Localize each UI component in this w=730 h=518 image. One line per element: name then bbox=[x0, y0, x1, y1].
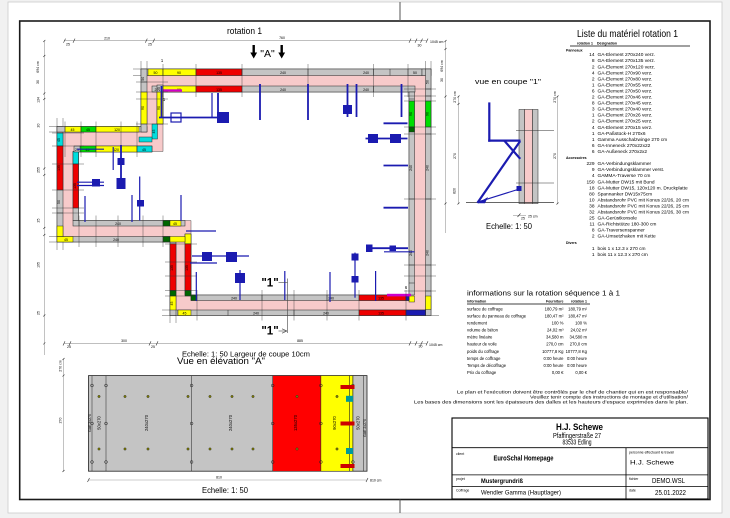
svg-text:GA-Verbindungsklammer verst.: GA-Verbindungsklammer verst. bbox=[598, 167, 665, 173]
svg-text:6: 6 bbox=[592, 149, 595, 155]
svg-text:Echelle: 1: 50: Echelle: 1: 50 bbox=[486, 222, 533, 231]
svg-text:90: 90 bbox=[157, 106, 161, 110]
svg-text:GA-Element 270x15 verz.: GA-Element 270x15 verz. bbox=[598, 125, 653, 131]
svg-text:24,02 m³: 24,02 m³ bbox=[547, 328, 564, 333]
svg-text:vue en coupe "1": vue en coupe "1" bbox=[475, 77, 541, 86]
svg-text:694 cm: 694 cm bbox=[440, 60, 444, 72]
svg-text:100 %: 100 % bbox=[575, 321, 587, 326]
svg-text:4: 4 bbox=[592, 125, 595, 131]
svg-text:45: 45 bbox=[57, 138, 61, 142]
svg-text:GA-Element 270x240 verz.: GA-Element 270x240 verz. bbox=[598, 52, 656, 58]
svg-text:projet: projet bbox=[456, 477, 465, 481]
svg-text:240: 240 bbox=[253, 311, 259, 315]
svg-text:Divers: Divers bbox=[566, 241, 577, 245]
svg-text:195: 195 bbox=[37, 262, 41, 268]
svg-text:GA-Traversenspanner: GA-Traversenspanner bbox=[598, 228, 646, 234]
svg-text:135: 135 bbox=[185, 265, 189, 271]
svg-text:GA-Element 270x135 verz.: GA-Element 270x135 verz. bbox=[598, 58, 656, 64]
svg-text:270: 270 bbox=[553, 153, 557, 159]
svg-text:25: 25 bbox=[157, 87, 161, 91]
svg-text:50: 50 bbox=[426, 80, 430, 84]
svg-text:personne effectuant le travail: personne effectuant le travail bbox=[629, 451, 674, 455]
svg-text:2: 2 bbox=[592, 95, 595, 101]
svg-text:H.J. Schewe: H.J. Schewe bbox=[556, 422, 603, 433]
svg-text:270: 270 bbox=[59, 418, 63, 424]
svg-text:810: 810 bbox=[216, 476, 222, 480]
svg-text:0:00 heure: 0:00 heure bbox=[543, 363, 564, 368]
svg-text:135: 135 bbox=[73, 183, 77, 189]
svg-text:25: 25 bbox=[148, 42, 152, 46]
svg-text:Wendler Gamma (Hauptlager): Wendler Gamma (Hauptlager) bbox=[481, 491, 561, 497]
svg-text:20: 20 bbox=[37, 124, 41, 128]
svg-text:18: 18 bbox=[589, 185, 595, 191]
svg-text:45: 45 bbox=[152, 130, 156, 134]
svg-text:45: 45 bbox=[86, 128, 90, 132]
svg-text:0,00 €: 0,00 € bbox=[575, 370, 587, 375]
svg-text:30: 30 bbox=[418, 44, 422, 48]
svg-text:135: 135 bbox=[170, 265, 174, 271]
svg-text:surface du panneau de coffrage: surface du panneau de coffrage bbox=[467, 313, 527, 318]
svg-text:2: 2 bbox=[592, 119, 595, 125]
svg-text:240: 240 bbox=[409, 250, 413, 256]
svg-text:rendement: rendement bbox=[467, 321, 488, 326]
svg-text:1: 1 bbox=[592, 113, 595, 119]
svg-text:GA-Element 270x120 verz.: GA-Element 270x120 verz. bbox=[598, 64, 656, 70]
svg-text:45: 45 bbox=[71, 128, 75, 132]
svg-text:120: 120 bbox=[113, 148, 119, 152]
svg-text:DEMO.WSL: DEMO.WSL bbox=[652, 478, 685, 485]
svg-text:240: 240 bbox=[409, 165, 413, 171]
svg-text:bois 1 x 12.3 x 270 cm: bois 1 x 12.3 x 270 cm bbox=[598, 246, 646, 252]
svg-text:date: date bbox=[629, 489, 636, 493]
svg-text:25: 25 bbox=[37, 311, 41, 315]
svg-text:240: 240 bbox=[426, 165, 430, 171]
svg-text:24,02 m³: 24,02 m³ bbox=[570, 328, 587, 333]
svg-text:270,0 cm: 270,0 cm bbox=[570, 342, 588, 347]
svg-text:50: 50 bbox=[57, 200, 61, 204]
svg-text:135: 135 bbox=[378, 296, 384, 300]
svg-text:25: 25 bbox=[151, 345, 155, 349]
svg-text:50: 50 bbox=[154, 71, 158, 75]
svg-text:50x270: 50x270 bbox=[97, 415, 102, 429]
svg-text:Prix du coffrage: Prix du coffrage bbox=[467, 370, 497, 375]
svg-text:300: 300 bbox=[121, 339, 127, 343]
svg-text:GA-Element 270x90 verz.: GA-Element 270x90 verz. bbox=[598, 70, 653, 76]
svg-text:GAE 2x270: GAE 2x270 bbox=[363, 419, 367, 437]
svg-text:90: 90 bbox=[141, 106, 145, 110]
svg-text:GA-Element 270x45 verz.: GA-Element 270x45 verz. bbox=[598, 101, 653, 107]
svg-text:1: 1 bbox=[592, 137, 595, 143]
svg-text:informations sur la rotation: informations sur la rotation séquence 1 … bbox=[467, 291, 620, 298]
svg-text:135: 135 bbox=[378, 311, 384, 315]
svg-text:229: 229 bbox=[586, 161, 594, 167]
svg-text:25: 25 bbox=[37, 219, 41, 223]
svg-text:270: 270 bbox=[453, 153, 457, 159]
svg-text:30: 30 bbox=[440, 78, 444, 82]
svg-text:Abstandsrohr PVC mit Konus 22/: Abstandsrohr PVC mit Konus 22/26, 20 cm bbox=[598, 197, 689, 203]
svg-text:client: client bbox=[456, 452, 464, 456]
svg-text:"1": "1" bbox=[261, 326, 278, 338]
svg-text:Gamma Ausschalzwinge 270 cm: Gamma Ausschalzwinge 270 cm bbox=[598, 137, 668, 143]
svg-text:25: 25 bbox=[521, 217, 525, 221]
svg-text:1: 1 bbox=[592, 252, 595, 258]
svg-text:GA-Element 270x50 verz.: GA-Element 270x50 verz. bbox=[598, 89, 653, 95]
svg-text:GA-Mutter DW15 mit Bund: GA-Mutter DW15 mit Bund bbox=[598, 179, 655, 185]
svg-text:Abstandsrohr PVC mit Konus 22/: Abstandsrohr PVC mit Konus 22/26, 25 cm bbox=[598, 204, 689, 210]
svg-text:45: 45 bbox=[170, 302, 174, 306]
svg-text:240: 240 bbox=[328, 296, 334, 300]
svg-text:240: 240 bbox=[231, 296, 237, 300]
svg-text:1: 1 bbox=[592, 82, 595, 88]
svg-text:45: 45 bbox=[173, 222, 177, 226]
svg-text:Accessoires: Accessoires bbox=[566, 156, 587, 160]
svg-text:135: 135 bbox=[57, 165, 61, 171]
svg-text:4: 4 bbox=[592, 70, 595, 76]
svg-text:"A": "A" bbox=[260, 48, 275, 60]
svg-text:10: 10 bbox=[589, 197, 595, 203]
svg-text:50: 50 bbox=[413, 71, 417, 75]
svg-text:poids du coffrage: poids du coffrage bbox=[467, 349, 500, 354]
svg-text:GAMMA-Traverse 70 cm: GAMMA-Traverse 70 cm bbox=[598, 173, 651, 179]
svg-text:EuroSchal Homepage: EuroSchal Homepage bbox=[494, 456, 554, 463]
svg-text:2: 2 bbox=[592, 76, 595, 82]
svg-text:mètre linéaire: mètre linéaire bbox=[467, 335, 493, 340]
svg-text:fichier: fichier bbox=[629, 477, 639, 481]
svg-text:Vue en élévation "A": Vue en élévation "A" bbox=[177, 356, 265, 367]
svg-text:820: 820 bbox=[453, 188, 457, 194]
svg-text:2: 2 bbox=[592, 234, 595, 240]
svg-text:hauteur de voile: hauteur de voile bbox=[467, 342, 497, 347]
svg-text:45: 45 bbox=[142, 148, 146, 152]
svg-text:240: 240 bbox=[426, 250, 430, 256]
svg-text:180,79 m²: 180,79 m² bbox=[545, 306, 564, 311]
svg-text:9: 9 bbox=[592, 167, 595, 173]
svg-text:0:00 heure: 0:00 heure bbox=[567, 363, 588, 368]
svg-text:Temps de décoffrage: Temps de décoffrage bbox=[467, 363, 507, 368]
svg-text:14: 14 bbox=[589, 52, 595, 58]
svg-text:30: 30 bbox=[419, 344, 423, 348]
svg-text:0:00 heure: 0:00 heure bbox=[567, 356, 588, 361]
svg-text:45: 45 bbox=[86, 148, 90, 152]
svg-text:H.J. Schewe: H.J. Schewe bbox=[630, 461, 675, 467]
svg-text:GA-Element 270x55 verz.: GA-Element 270x55 verz. bbox=[598, 82, 653, 88]
svg-text:rotation 1: rotation 1 bbox=[227, 26, 262, 37]
svg-text:270 cm: 270 cm bbox=[59, 360, 63, 372]
svg-text:GA-Umsetzhaken mit Kette: GA-Umsetzhaken mit Kette bbox=[598, 234, 656, 240]
svg-text:180,47 m²: 180,47 m² bbox=[568, 313, 587, 318]
svg-text:90: 90 bbox=[177, 71, 181, 75]
svg-text:90x270: 90x270 bbox=[332, 415, 337, 429]
svg-text:240: 240 bbox=[323, 311, 329, 315]
svg-text:240: 240 bbox=[363, 88, 369, 92]
svg-text:25: 25 bbox=[75, 148, 79, 152]
svg-text:25: 25 bbox=[589, 216, 595, 222]
svg-text:38: 38 bbox=[589, 204, 595, 210]
svg-text:GA-Inneneck 270x22x22: GA-Inneneck 270x22x22 bbox=[598, 143, 651, 149]
svg-text:Les bases des dimensions sont: Les bases des dimensions sont les épaiss… bbox=[414, 400, 688, 405]
svg-text:34,580 m: 34,580 m bbox=[546, 335, 564, 340]
svg-text:255: 255 bbox=[37, 167, 41, 173]
svg-text:rotation 1: rotation 1 bbox=[577, 42, 593, 46]
svg-text:0:00 heure: 0:00 heure bbox=[543, 356, 564, 361]
svg-text:6: 6 bbox=[592, 89, 595, 95]
svg-text:25.01.2022: 25.01.2022 bbox=[655, 490, 686, 497]
svg-text:810 cm: 810 cm bbox=[370, 479, 382, 483]
svg-text:34,580 m: 34,580 m bbox=[570, 335, 588, 340]
svg-text:8: 8 bbox=[592, 101, 595, 107]
svg-text:885: 885 bbox=[297, 339, 303, 343]
svg-text:Fourniture: Fourniture bbox=[546, 300, 564, 304]
svg-text:bois 11 x 12.3 x 270 cm: bois 11 x 12.3 x 270 cm bbox=[598, 252, 648, 258]
svg-text:45: 45 bbox=[64, 238, 68, 242]
svg-text:134: 134 bbox=[37, 97, 41, 103]
svg-text:GA-Element 270x40 verz.: GA-Element 270x40 verz. bbox=[598, 107, 653, 113]
svg-text:270 cm: 270 cm bbox=[453, 91, 457, 103]
svg-text:GA-Gerüstkonsole: GA-Gerüstkonsole bbox=[598, 216, 638, 222]
svg-text:694 cm: 694 cm bbox=[36, 61, 40, 73]
svg-text:8: 8 bbox=[592, 228, 595, 234]
svg-text:rotation 1: rotation 1 bbox=[571, 300, 587, 304]
svg-text:1045 cm: 1045 cm bbox=[429, 343, 443, 347]
svg-text:Echelle: 1: 50: Echelle: 1: 50 bbox=[202, 486, 249, 495]
svg-text:Spannanker DW15x75cm: Spannanker DW15x75cm bbox=[598, 191, 653, 197]
svg-text:surface de coffrage: surface de coffrage bbox=[467, 306, 503, 311]
svg-text:GA-Außeneck 270x2x2: GA-Außeneck 270x2x2 bbox=[598, 149, 648, 155]
svg-text:4: 4 bbox=[592, 173, 595, 179]
svg-text:135x270: 135x270 bbox=[293, 414, 298, 431]
svg-text:25 cm: 25 cm bbox=[528, 215, 538, 219]
svg-text:270,0 cm: 270,0 cm bbox=[546, 342, 564, 347]
svg-text:3: 3 bbox=[592, 107, 595, 113]
svg-text:83533 Edling: 83533 Edling bbox=[563, 440, 592, 447]
svg-text:760: 760 bbox=[279, 36, 285, 40]
svg-text:GA-Richtstütze 180-300 cm: GA-Richtstütze 180-300 cm bbox=[598, 222, 657, 228]
svg-text:240: 240 bbox=[363, 71, 369, 75]
svg-text:32: 32 bbox=[589, 210, 595, 216]
svg-text:1: 1 bbox=[592, 131, 595, 137]
svg-text:120: 120 bbox=[114, 128, 120, 132]
svg-text:Coffrage: Coffrage bbox=[456, 489, 469, 493]
svg-text:135: 135 bbox=[216, 71, 222, 75]
svg-text:25: 25 bbox=[67, 345, 71, 349]
svg-text:6: 6 bbox=[592, 143, 595, 149]
svg-text:240: 240 bbox=[280, 88, 286, 92]
svg-text:10777,8 Kg: 10777,8 Kg bbox=[566, 349, 588, 354]
svg-text:8: 8 bbox=[592, 58, 595, 64]
svg-text:0,00 €: 0,00 € bbox=[552, 370, 564, 375]
svg-text:180,47 m²: 180,47 m² bbox=[545, 313, 564, 318]
svg-text:GA-Element 270x46 verz.: GA-Element 270x46 verz. bbox=[598, 95, 653, 101]
svg-text:information: information bbox=[467, 300, 486, 304]
svg-text:temps de coffrage: temps de coffrage bbox=[467, 356, 501, 361]
svg-text:240: 240 bbox=[280, 71, 286, 75]
svg-text:50: 50 bbox=[141, 77, 145, 81]
svg-text:210: 210 bbox=[104, 37, 110, 41]
svg-text:2: 2 bbox=[592, 64, 595, 70]
svg-text:Liste du matériel rotation 1: Liste du matériel rotation 1 bbox=[577, 28, 678, 40]
svg-text:Désignation: Désignation bbox=[597, 42, 617, 46]
svg-text:50x270: 50x270 bbox=[356, 415, 361, 429]
svg-text:10777,8 Kg: 10777,8 Kg bbox=[542, 349, 564, 354]
svg-text:GA-Verbindungsklammer: GA-Verbindungsklammer bbox=[598, 161, 652, 167]
svg-text:270 cm: 270 cm bbox=[553, 91, 557, 103]
svg-text:135: 135 bbox=[216, 88, 222, 92]
svg-text:Abstandsrohr PVC mit Konus 22/: Abstandsrohr PVC mit Konus 22/26, 30 cm bbox=[598, 210, 689, 216]
svg-text:GA-Mutter DW15, 120x120 m. Dru: GA-Mutter DW15, 120x120 m. Druckplatte bbox=[598, 185, 688, 191]
svg-text:GA-Element 270x26 verz.: GA-Element 270x26 verz. bbox=[598, 113, 653, 119]
svg-text:11: 11 bbox=[590, 222, 595, 228]
svg-text:240x270: 240x270 bbox=[228, 414, 233, 431]
svg-text:"1": "1" bbox=[261, 278, 278, 290]
svg-text:25: 25 bbox=[66, 42, 70, 46]
svg-text:GA-Element 270x80 verz.: GA-Element 270x80 verz. bbox=[598, 76, 653, 82]
svg-text:Mustergrundriß: Mustergrundriß bbox=[481, 479, 523, 485]
svg-text:GAE 3x270: GAE 3x270 bbox=[88, 414, 92, 432]
svg-text:GA-Paßstück-H 270x6: GA-Paßstück-H 270x6 bbox=[598, 131, 646, 137]
svg-text:150: 150 bbox=[586, 179, 594, 185]
svg-text:1: 1 bbox=[592, 246, 595, 252]
svg-text:80: 80 bbox=[589, 191, 595, 197]
svg-text:GA-Element 270x25 verz.: GA-Element 270x25 verz. bbox=[598, 119, 653, 125]
svg-text:100 %: 100 % bbox=[552, 321, 564, 326]
svg-text:1045 cm: 1045 cm bbox=[430, 40, 444, 44]
svg-text:90: 90 bbox=[426, 112, 430, 116]
svg-text:30: 30 bbox=[36, 80, 40, 84]
svg-text:Panneaux: Panneaux bbox=[566, 48, 583, 52]
svg-text:240x270: 240x270 bbox=[144, 414, 149, 431]
svg-text:90: 90 bbox=[409, 112, 413, 116]
svg-text:volume de béton: volume de béton bbox=[467, 328, 499, 333]
svg-text:45: 45 bbox=[183, 311, 187, 315]
svg-text:180,79 m²: 180,79 m² bbox=[568, 306, 587, 311]
